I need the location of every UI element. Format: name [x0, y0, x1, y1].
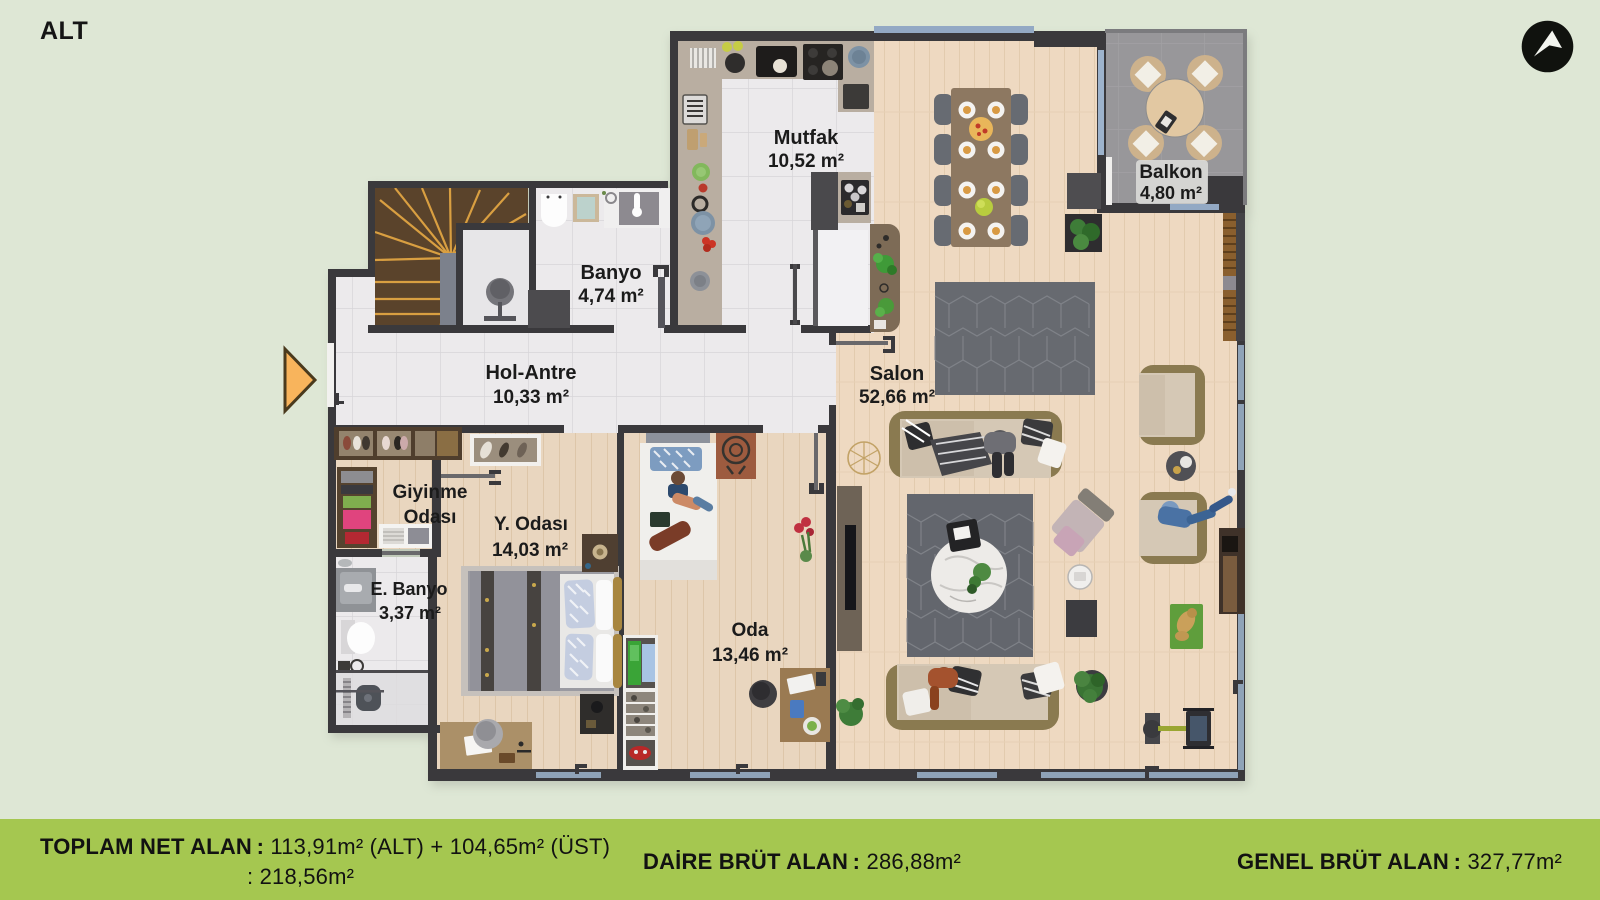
- svg-text:4,80 m²: 4,80 m²: [1140, 183, 1202, 203]
- svg-text:Balkon: Balkon: [1139, 162, 1202, 183]
- svg-text:10,52 m²: 10,52 m²: [768, 151, 844, 172]
- svg-text:4,74 m²: 4,74 m²: [578, 286, 643, 307]
- svg-text:10,33 m²: 10,33 m²: [493, 387, 569, 408]
- svg-text:3,37 m²: 3,37 m²: [379, 603, 441, 623]
- svg-text:Salon: Salon: [870, 363, 924, 385]
- svg-text:E. Banyo: E. Banyo: [370, 579, 447, 599]
- svg-text:Mutfak: Mutfak: [774, 127, 839, 149]
- svg-text:Odası: Odası: [404, 507, 457, 528]
- svg-text:13,46 m²: 13,46 m²: [712, 645, 788, 666]
- svg-text:Y. Odası: Y. Odası: [494, 514, 568, 535]
- svg-text:52,66 m²: 52,66 m²: [859, 387, 935, 408]
- svg-text:Oda: Oda: [732, 620, 769, 641]
- svg-text:Banyo: Banyo: [580, 262, 641, 284]
- svg-text:Hol-Antre: Hol-Antre: [485, 362, 576, 384]
- svg-text:Giyinme: Giyinme: [393, 482, 468, 503]
- svg-text:14,03 m²: 14,03 m²: [492, 540, 568, 561]
